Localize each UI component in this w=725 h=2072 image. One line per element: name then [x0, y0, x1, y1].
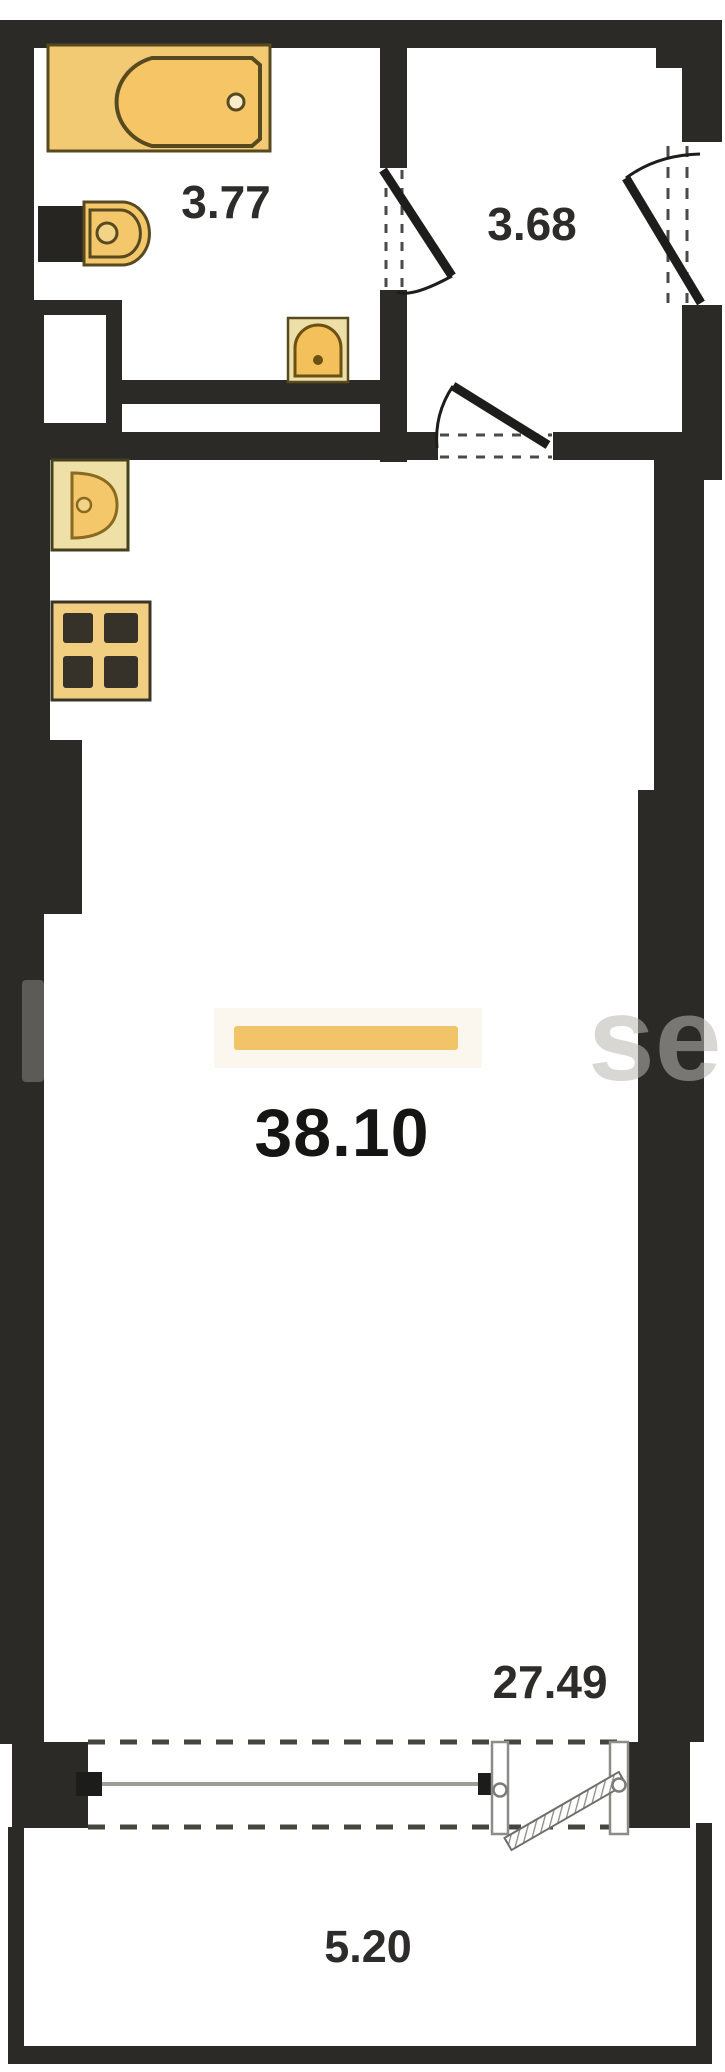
stove-icon	[52, 602, 150, 700]
wall-right-mid-upper	[654, 460, 704, 792]
living-room-area-label: 38.10	[254, 1095, 429, 1171]
balcony-area-label: 5.20	[324, 1921, 412, 1972]
balcony-door-hinge-left	[494, 1784, 507, 1797]
living-room-zone-area-label: 27.49	[492, 1656, 607, 1708]
wall-balcony-bottom	[8, 2046, 712, 2064]
wall-right-balcony-block	[628, 1742, 690, 1828]
bathtub-icon	[48, 45, 270, 151]
balcony-door-hinge-right	[613, 1779, 626, 1792]
watermark-fragment-left	[22, 980, 44, 1082]
wall-top-right-block	[682, 20, 722, 142]
floor-plan-canvas: se	[0, 0, 725, 2072]
area-highlight-bar	[234, 1026, 458, 1050]
wall-bathroom-bottom	[120, 380, 407, 404]
floor-plan: se	[0, 0, 725, 2072]
toilet-icon	[38, 202, 149, 265]
wall-top-right-nub	[656, 44, 686, 68]
kitchen-sink-icon	[52, 460, 128, 550]
duct-shaft-interior	[44, 315, 106, 423]
window-end-left	[76, 1772, 102, 1796]
wall-room-top-right	[553, 432, 690, 460]
wall-room-top-left	[20, 432, 438, 460]
wall-left-kitchen	[0, 432, 50, 744]
watermark-text: se	[588, 972, 721, 1106]
wall-right-mid-lower	[638, 790, 704, 1742]
washbasin-icon	[288, 318, 348, 382]
wall-left-upper	[0, 20, 34, 440]
wall-bathroom-hall-upper	[380, 46, 407, 168]
wall-left-pilaster	[0, 740, 82, 914]
wall-balcony-right	[696, 1823, 712, 2064]
hallway-area-label: 3.68	[487, 198, 577, 250]
bathroom-area-label: 3.77	[181, 176, 271, 228]
wall-balcony-left	[8, 1827, 24, 2064]
